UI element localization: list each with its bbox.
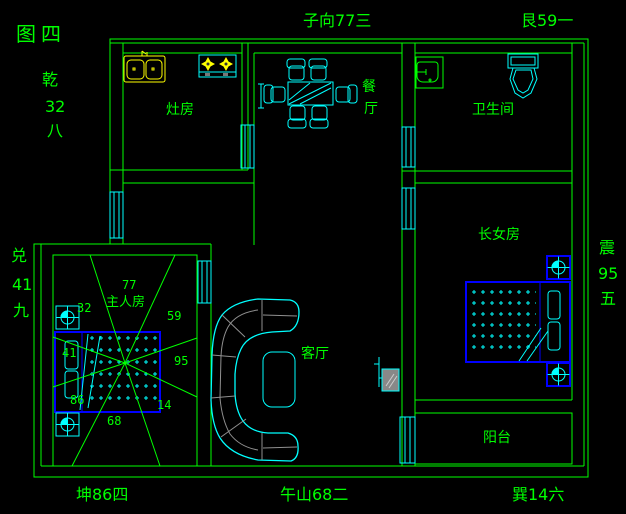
tv [374, 357, 399, 391]
compass-w-digit: 九 [13, 303, 29, 319]
nightstand [547, 363, 570, 386]
window-master-wall [198, 261, 211, 303]
chair [264, 85, 285, 103]
mattress-dots [470, 288, 536, 352]
label-daughter-room: 长女房 [478, 228, 520, 242]
compass-nw-digit: 八 [47, 123, 63, 139]
mattress-dots [90, 336, 158, 408]
star-nw: 32 [77, 302, 91, 314]
dining-table [288, 82, 333, 105]
sofa-seams [211, 300, 297, 460]
compass-e-digit: 五 [600, 291, 616, 307]
chair [309, 59, 327, 80]
label-bathroom: 卫生间 [472, 103, 514, 117]
floor-plan-canvas: 图四 乾 32 八 子向77三 艮59一 兑 41 九 震 95 五 坤86四 … [0, 0, 626, 514]
chair [336, 85, 357, 103]
kitchen-sink [124, 51, 165, 82]
compass-ne-label: 艮59一 [521, 13, 573, 29]
survey-point-icon [548, 364, 570, 386]
nightstand [547, 256, 570, 279]
star-se: 14 [157, 399, 171, 411]
survey-point-icon [57, 307, 79, 329]
star-e: 95 [174, 355, 188, 367]
figure-title: 图四 [16, 24, 66, 44]
kitchen-door-leaf [258, 84, 264, 108]
daughter-bed [466, 282, 570, 362]
compass-nw-number: 32 [45, 99, 65, 115]
star-ne: 59 [167, 310, 181, 322]
compass-w-number: 41 [12, 277, 32, 293]
sofa [211, 299, 299, 461]
compass-north-label: 子向77三 [303, 13, 371, 29]
label-balcony: 阳台 [483, 431, 511, 445]
label-dining-2: 厅 [364, 102, 378, 116]
coffee-table [263, 352, 295, 407]
stove [199, 55, 236, 77]
star-w: 41 [62, 347, 76, 359]
label-kitchen: 灶房 [166, 103, 194, 117]
window-daughter-wall [402, 188, 415, 229]
chair [310, 106, 328, 128]
label-master-room: 主人房 [106, 296, 145, 309]
label-living-room: 客厅 [301, 347, 329, 361]
compass-se-label: 巽14六 [512, 487, 564, 503]
wash-basin [416, 57, 443, 88]
compass-south-label: 午山68二 [280, 487, 348, 503]
label-dining-1: 餐 [362, 80, 376, 94]
toilet [508, 54, 538, 98]
compass-sw-label: 坤86四 [76, 487, 128, 503]
chair [287, 59, 305, 80]
survey-point-icon [57, 414, 79, 436]
star-n: 77 [122, 279, 136, 291]
compass-nw-trigram: 乾 [42, 72, 58, 88]
compass-e-number: 95 [598, 266, 618, 282]
survey-point-icon [548, 257, 570, 279]
window-left-wall [110, 192, 123, 238]
star-s: 68 [107, 415, 121, 427]
floor-plan-drawing [0, 0, 626, 514]
nightstand [56, 306, 79, 329]
star-sw: 86 [70, 394, 84, 406]
nightstand [56, 413, 79, 436]
chair [288, 106, 306, 128]
window-bathroom-wall [402, 127, 415, 167]
compass-w-trigram: 兑 [11, 248, 27, 264]
compass-e-trigram: 震 [599, 240, 615, 256]
